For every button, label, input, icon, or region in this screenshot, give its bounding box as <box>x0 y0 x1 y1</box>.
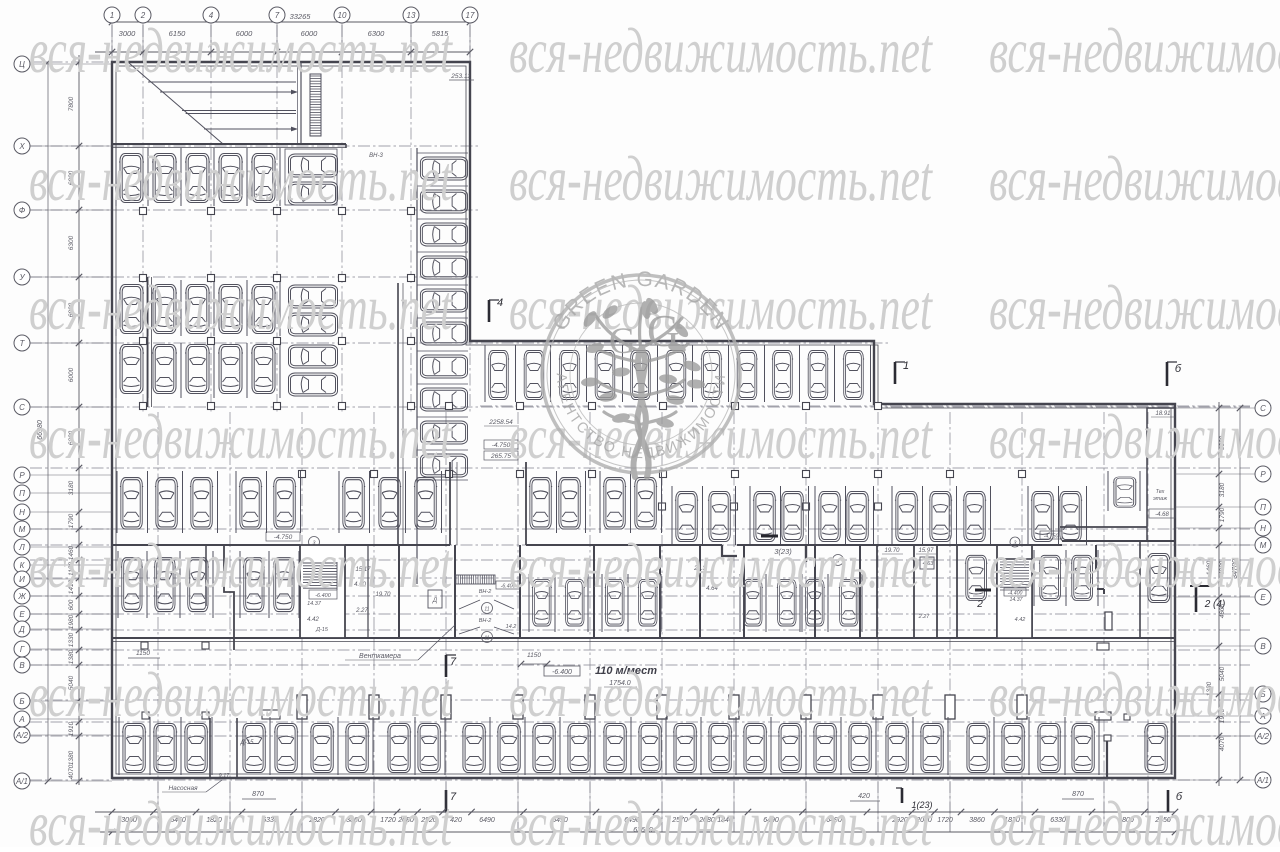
svg-text:вся-недвижимость.net: вся-недвижимость.net <box>29 530 454 601</box>
svg-text:А/2: А/2 <box>15 731 29 740</box>
svg-text:3180: 3180 <box>1219 482 1226 497</box>
svg-text:14.37: 14.37 <box>307 601 322 607</box>
svg-text:11: 11 <box>484 636 489 642</box>
svg-text:А: А <box>18 715 24 724</box>
svg-text:Л: Л <box>18 543 25 552</box>
svg-text:этаж: этаж <box>1153 496 1167 502</box>
svg-text:4: 4 <box>497 297 503 309</box>
svg-text:-4.68: -4.68 <box>1155 512 1169 518</box>
svg-text:П: П <box>19 489 25 498</box>
svg-text:6300: 6300 <box>68 235 75 250</box>
svg-text:ВН-2: ВН-2 <box>479 618 492 624</box>
svg-text:В: В <box>19 661 25 670</box>
svg-text:7800: 7800 <box>68 96 75 111</box>
svg-text:1380: 1380 <box>68 750 75 765</box>
svg-text:вся-недвижимость.net: вся-недвижимость.net <box>29 401 454 472</box>
svg-text:вся-недвижимость.net: вся-недвижимость.net <box>989 272 1280 343</box>
svg-text:А/2: А/2 <box>1256 732 1270 741</box>
svg-text:Д-15: Д-15 <box>240 740 255 746</box>
svg-text:1330: 1330 <box>68 632 75 647</box>
svg-text:1150: 1150 <box>527 652 541 659</box>
svg-text:вся-недвижимость.net: вся-недвижимость.net <box>989 659 1280 730</box>
svg-text:вся-недвижимость.net: вся-недвижимость.net <box>29 15 454 86</box>
svg-text:С: С <box>19 403 25 412</box>
svg-text:4.42: 4.42 <box>307 617 319 623</box>
svg-text:4.42: 4.42 <box>1015 617 1026 623</box>
svg-text:вся-недвижимость.net: вся-недвижимость.net <box>989 401 1280 472</box>
svg-text:б: б <box>1175 363 1182 375</box>
svg-text:Г: Г <box>20 645 25 654</box>
svg-text:вся-недвижимость.net: вся-недвижимость.net <box>989 15 1280 86</box>
svg-text:вся-недвижимость.net: вся-недвижимость.net <box>509 15 934 86</box>
svg-text:14.2: 14.2 <box>506 624 517 630</box>
svg-text:4070: 4070 <box>1219 736 1226 751</box>
svg-text:253.11: 253.11 <box>450 73 471 80</box>
svg-text:В: В <box>1260 642 1266 651</box>
svg-text:А/1: А/1 <box>1256 776 1269 785</box>
svg-text:Х: Х <box>18 142 25 151</box>
svg-text:2: 2 <box>976 599 983 610</box>
svg-text:Н: Н <box>19 508 25 517</box>
svg-text:вся-недвижимость.net: вся-недвижимость.net <box>29 659 454 730</box>
svg-text:вся-недвижимость.net: вся-недвижимость.net <box>989 788 1280 847</box>
svg-text:2.27: 2.27 <box>355 608 368 614</box>
svg-text:1980: 1980 <box>68 614 75 629</box>
svg-text:Ф: Ф <box>19 206 26 215</box>
svg-text:вся-недвижимость.net: вся-недвижимость.net <box>509 530 934 601</box>
svg-text:6490: 6490 <box>479 817 495 824</box>
svg-text:П: П <box>1260 503 1266 512</box>
svg-text:9.17: 9.17 <box>219 773 231 779</box>
svg-text:Ц: Ц <box>19 60 25 69</box>
svg-text:17: 17 <box>466 11 475 20</box>
svg-text:вся-недвижимость.net: вся-недвижимость.net <box>29 788 454 847</box>
svg-text:1150: 1150 <box>136 650 150 657</box>
svg-text:1790: 1790 <box>68 513 75 528</box>
svg-text:вся-недвижимость.net: вся-недвижимость.net <box>29 272 454 343</box>
svg-text:Е: Е <box>19 610 25 619</box>
svg-text:Р: Р <box>19 471 25 480</box>
svg-text:Тех: Тех <box>1156 489 1165 495</box>
svg-text:1790: 1790 <box>1219 507 1226 522</box>
svg-text:Д: Д <box>18 625 25 634</box>
svg-text:У: У <box>18 273 25 282</box>
svg-text:вся-недвижимость.net: вся-недвижимость.net <box>989 143 1280 214</box>
svg-text:вся-недвижимость.net: вся-недвижимость.net <box>989 530 1280 601</box>
svg-text:2.27: 2.27 <box>918 614 931 620</box>
svg-text:4600: 4600 <box>1219 603 1226 618</box>
svg-text:вся-недвижимость.net: вся-недвижимость.net <box>509 788 934 847</box>
svg-text:3860: 3860 <box>969 817 985 824</box>
svg-text:1: 1 <box>903 360 909 372</box>
svg-text:-4.750: -4.750 <box>492 442 511 449</box>
svg-text:А/1: А/1 <box>15 777 28 786</box>
svg-text:вся-недвижимость.net: вся-недвижимость.net <box>509 659 934 730</box>
svg-text:Д-15: Д-15 <box>315 627 329 633</box>
svg-text:G: G <box>609 321 636 362</box>
svg-text:G: G <box>647 306 680 356</box>
svg-text:вся-недвижимость.net: вся-недвижимость.net <box>509 143 934 214</box>
svg-text:ВН-2: ВН-2 <box>479 589 492 595</box>
svg-text:Б: Б <box>19 697 24 706</box>
svg-text:3180: 3180 <box>68 480 75 495</box>
svg-text:вся-недвижимость.net: вся-недвижимость.net <box>29 143 454 214</box>
svg-text:М: М <box>19 525 26 534</box>
svg-text:4070: 4070 <box>68 764 75 779</box>
svg-text:И: И <box>19 575 25 584</box>
svg-text:11: 11 <box>484 607 489 613</box>
svg-text:6000: 6000 <box>68 367 75 382</box>
svg-text:1720: 1720 <box>937 817 953 824</box>
svg-text:Ж: Ж <box>17 592 26 601</box>
